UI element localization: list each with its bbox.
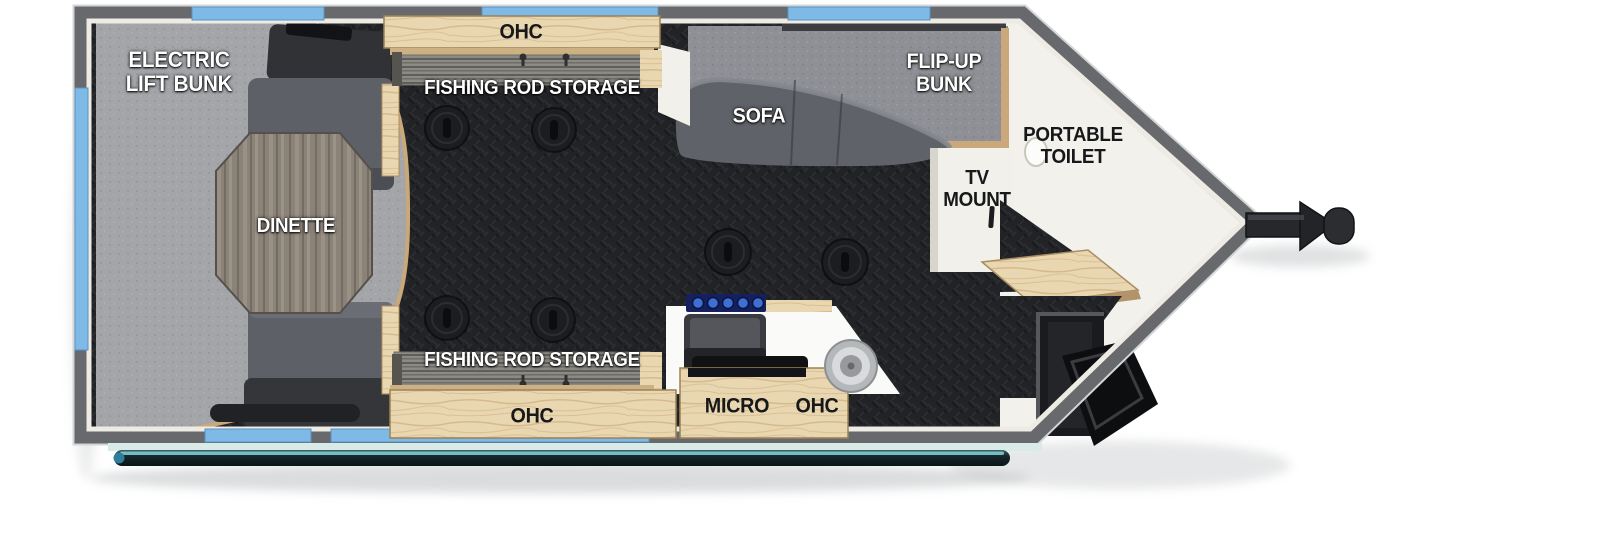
counter-wood-block [762, 300, 832, 312]
lift-bunk-track [210, 404, 360, 422]
label-portable-toilet-line1: PORTABLE [1023, 124, 1123, 146]
rod-tray-bottom-right-cap [640, 352, 662, 390]
fishing-hole [425, 296, 469, 340]
label-tv-mount-line2: MOUNT [943, 189, 1011, 211]
floorplan-canvas: ELECTRIC LIFT BUNK OHC FISHING ROD STORA… [0, 0, 1600, 544]
label-electric-lift-bunk: ELECTRIC LIFT BUNK [126, 48, 233, 96]
sink [825, 340, 877, 392]
fishing-hole [822, 239, 868, 285]
awning-rod-cap [114, 453, 125, 464]
window-bottom-left [205, 429, 311, 442]
label-micro: MICRO [705, 394, 769, 417]
window-top-left [192, 7, 324, 20]
awning-rod-highlight [120, 452, 1004, 456]
flip-up-bunk-right-trim [1001, 28, 1009, 150]
label-dinette: DINETTE [257, 215, 335, 237]
fishing-hole [531, 298, 575, 342]
label-electric-lift-bunk-line1: ELECTRIC [126, 48, 233, 72]
wood-trim-top [382, 84, 399, 176]
hitch [1246, 202, 1354, 250]
label-flip-up-bunk-line1: FLIP-UP [907, 50, 982, 73]
label-flip-up-bunk-line2: BUNK [907, 73, 982, 96]
awning-group [108, 443, 1042, 466]
label-sofa: SOFA [733, 104, 786, 127]
rod-tray-top-left-cap [392, 52, 402, 86]
label-electric-lift-bunk-line2: LIFT BUNK [126, 72, 233, 96]
label-fishing-rod-storage-bottom: FISHING ROD STORAGE [424, 349, 640, 371]
deck-strip [108, 443, 1042, 451]
label-ohc-bottom: OHC [510, 404, 553, 427]
wall-end-cap [658, 44, 690, 126]
window-left-side [75, 88, 88, 350]
kitchen-cabinet-top-strip [688, 368, 806, 377]
window-top-right [788, 7, 930, 20]
label-fishing-rod-storage-top: FISHING ROD STORAGE [424, 77, 640, 99]
label-ohc-top: OHC [499, 20, 542, 43]
floorplan-drawing [0, 0, 1600, 544]
label-tv-mount-line1: TV [943, 167, 1011, 189]
fishing-hole [705, 229, 751, 275]
rod-tray-bottom-left-cap [392, 354, 402, 388]
label-flip-up-bunk: FLIP-UP BUNK [907, 50, 982, 96]
fishing-hole [532, 108, 576, 152]
fishing-hole [425, 106, 469, 150]
label-tv-mount: TV MOUNT [943, 167, 1011, 211]
label-ohc-kitchen: OHC [795, 394, 838, 417]
label-portable-toilet: PORTABLE TOILET [1023, 124, 1123, 168]
label-portable-toilet-line2: TOILET [1023, 146, 1123, 168]
rod-tray-top-right-cap [640, 50, 662, 88]
